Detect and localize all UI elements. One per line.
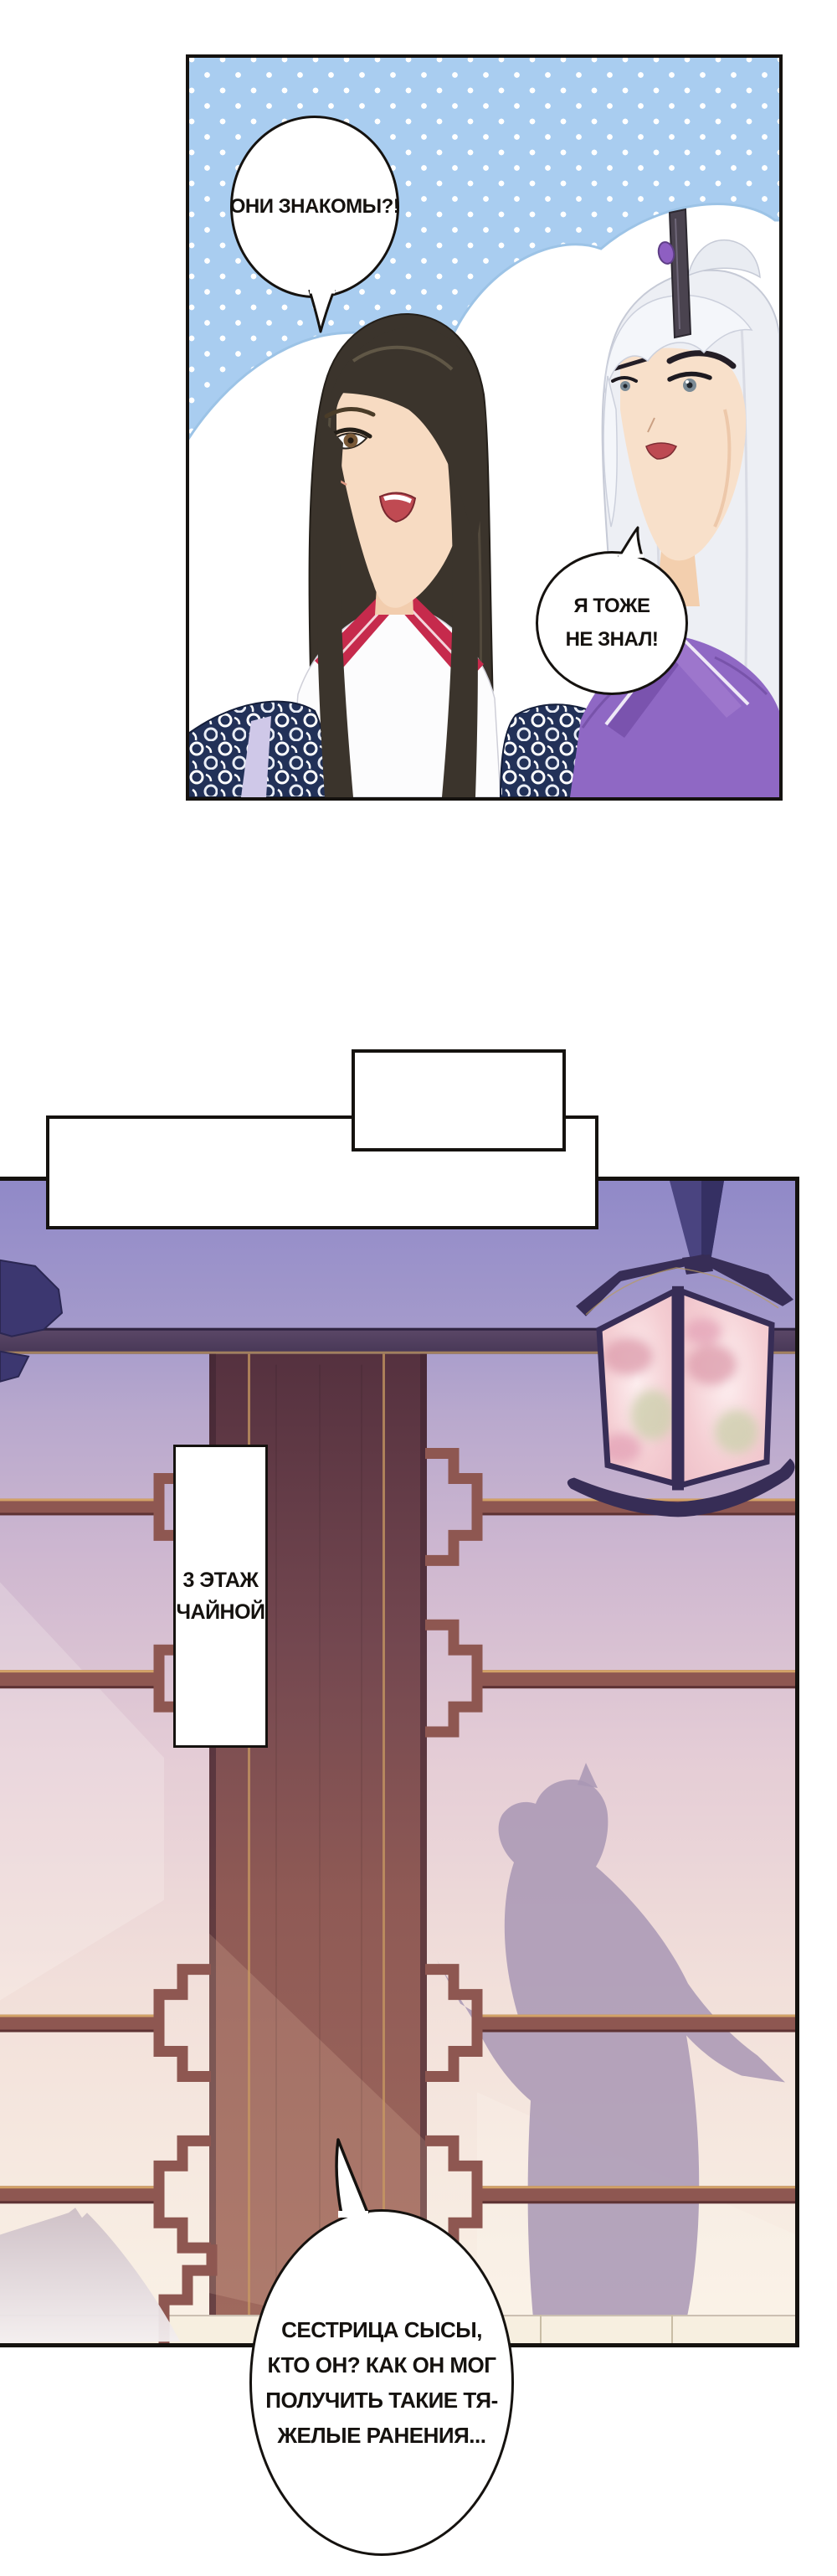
speech-bubble-shock: ОНИ ЗНАКОМЫ?!	[230, 116, 399, 298]
panel-teahouse	[0, 1177, 799, 2347]
speech-text: НЕ ЗНАЛ!	[566, 623, 659, 657]
sign-text: 3 ЭТАЖ	[183, 1569, 259, 1593]
manga-page: ОНИ ЗНАКОМЫ?! Я ТОЖЕ НЕ ЗНАЛ!	[0, 0, 837, 2576]
speech-text: КТО ОН? КАК ОН МОГ	[268, 2347, 496, 2383]
bubble-tail-down	[306, 290, 336, 335]
sign-text: ЧАЙНОЙ	[176, 1600, 264, 1625]
speech-text: Я ТОЖЕ	[573, 590, 650, 623]
speech-bubble-question: СЕСТРИЦА СЫСЫ, КТО ОН? КАК ОН МОГ ПОЛУЧИ…	[249, 2209, 514, 2556]
speech-text: ЖЕЛЫЕ РАНЕНИЯ...	[278, 2418, 486, 2453]
speech-text: ОНИ ЗНАКОМЫ?!	[230, 195, 400, 219]
bubble-tail-up-left	[330, 2137, 370, 2218]
teahouse-scene	[0, 1181, 795, 2343]
speech-text: ПОЛУЧИТЬ ТАКИЕ ТЯ-	[265, 2383, 497, 2418]
sign-box: 3 ЭТАЖ ЧАЙНОЙ	[173, 1445, 268, 1748]
bubble-tail-up	[616, 526, 644, 558]
speech-text: СЕСТРИЦА СЫСЫ,	[281, 2312, 482, 2347]
empty-caption-box-small	[352, 1049, 566, 1151]
speech-bubble-reply: Я ТОЖЕ НЕ ЗНАЛ!	[536, 551, 688, 695]
